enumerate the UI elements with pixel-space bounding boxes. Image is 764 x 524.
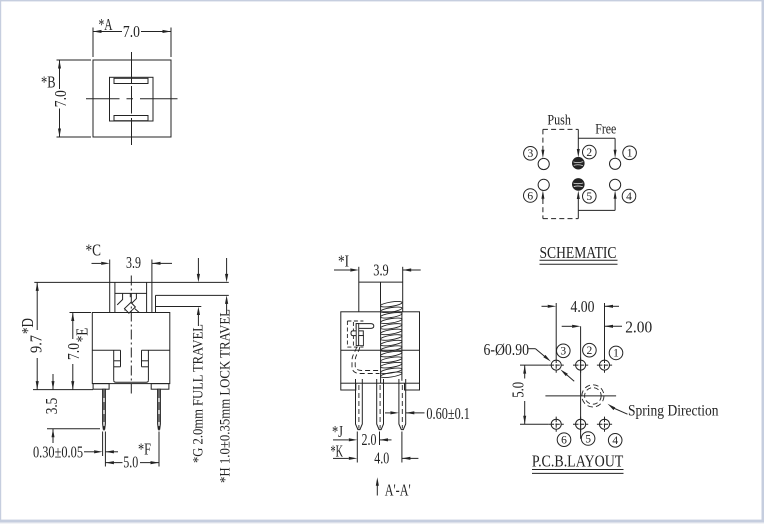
svg-text:4.0: 4.0 [374,448,389,467]
svg-text:3: 3 [528,148,534,160]
svg-text:*I: *I [338,252,349,271]
svg-text:5.0: 5.0 [509,382,528,398]
svg-text:1: 1 [613,348,619,360]
svg-text:2: 2 [586,147,592,159]
svg-text:7.0: 7.0 [51,90,70,107]
svg-text:5: 5 [586,191,592,203]
svg-text:0.60±0.1: 0.60±0.1 [426,404,470,423]
svg-text:7.0: 7.0 [123,22,140,41]
svg-text:*C: *C [86,241,102,260]
svg-text:3.9: 3.9 [373,260,389,279]
svg-text:3: 3 [560,346,566,358]
svg-text:2.00: 2.00 [625,318,652,337]
svg-text:6: 6 [527,190,533,202]
svg-text:SCHEMATIC: SCHEMATIC [540,243,617,262]
svg-text:2: 2 [587,345,593,357]
svg-text:Push: Push [547,112,571,128]
svg-text:3.9: 3.9 [126,253,141,272]
svg-text:*E: *E [73,328,92,343]
svg-text:7.0: 7.0 [64,343,83,360]
svg-text:*H 1.0±0.35mm LOCK TRAVEL: *H 1.0±0.35mm LOCK TRAVEL [217,309,234,483]
svg-text:2.0: 2.0 [362,430,377,449]
svg-text:*J: *J [332,422,343,441]
svg-text:6: 6 [561,435,567,447]
svg-text:0.30±0.05: 0.30±0.05 [33,443,83,462]
svg-text:4.00: 4.00 [571,297,595,316]
svg-text:Free: Free [595,122,616,138]
svg-text:P.C.B.LAYOUT: P.C.B.LAYOUT [532,452,624,471]
svg-text:4: 4 [612,435,618,447]
svg-text:5: 5 [585,433,591,445]
svg-text:9.7: 9.7 [27,335,46,353]
svg-text:Spring Direction: Spring Direction [628,403,719,420]
svg-text:1: 1 [627,148,633,160]
svg-text:*A: *A [99,15,113,34]
svg-text:*B: *B [41,72,56,91]
svg-text:*F: *F [138,440,151,459]
svg-text:*G 2.0mm FULL TRAVEL: *G 2.0mm FULL TRAVEL [190,324,207,463]
svg-text:*K: *K [331,442,344,461]
svg-text:6-Ø0.90: 6-Ø0.90 [484,340,530,359]
svg-text:A'-A': A'-A' [385,481,411,500]
svg-text:*D: *D [18,318,37,334]
svg-text:3.5: 3.5 [42,398,61,415]
svg-text:4: 4 [626,191,632,203]
svg-text:5.0: 5.0 [123,452,138,471]
